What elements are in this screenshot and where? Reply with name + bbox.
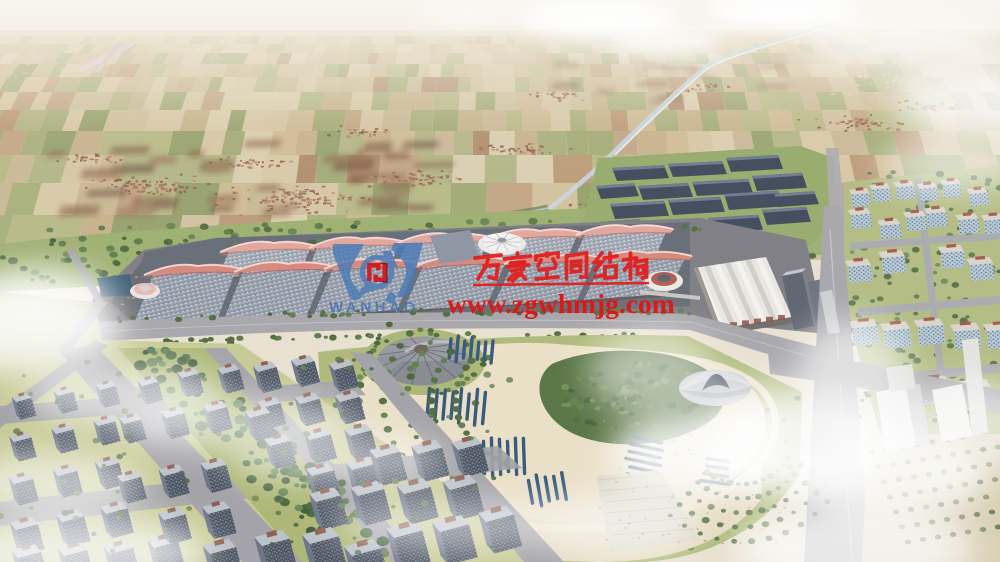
svg-text:WANHAO: WANHAO bbox=[329, 299, 419, 316]
svg-text:www.zgwhmjg.com: www.zgwhmjg.com bbox=[447, 288, 675, 319]
